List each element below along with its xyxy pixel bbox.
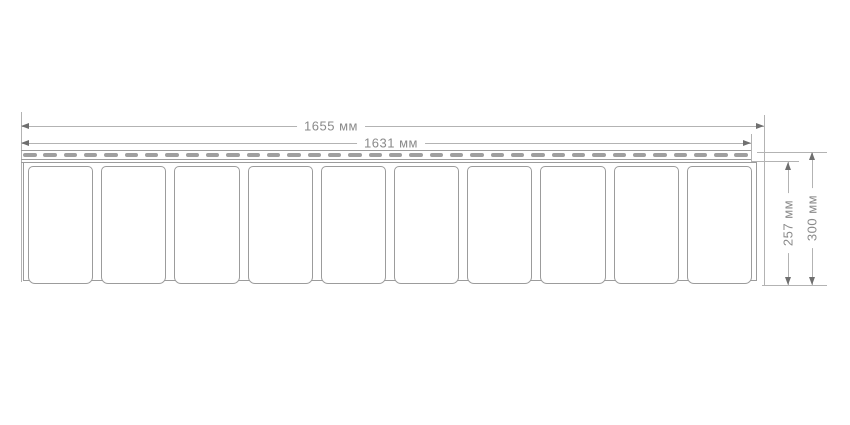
shake-tile (540, 166, 605, 284)
nail-slot (267, 153, 281, 157)
dimension-height-outer-label: 300 мм (805, 188, 820, 248)
nail-slot (714, 153, 728, 157)
dimension-width-inner: 1631 мм (21, 143, 751, 144)
extension-line-left (21, 112, 22, 282)
shake-tile (28, 166, 93, 284)
nail-slot (287, 153, 301, 157)
extension-line-right-inner (751, 134, 752, 163)
nail-slot (165, 153, 179, 157)
nail-slot (23, 153, 37, 157)
nail-slot (389, 153, 403, 157)
extension-line-top-outer (757, 152, 827, 153)
nail-slot (43, 153, 57, 157)
nail-slot (430, 153, 444, 157)
dimension-width-inner-label: 1631 мм (357, 136, 425, 151)
nail-slot (328, 153, 342, 157)
nail-slot (409, 153, 423, 157)
nail-slot (531, 153, 545, 157)
dimension-arrowhead-down-icon (809, 277, 815, 285)
technical-drawing-canvas: 1655 мм 1631 мм 257 мм 300 мм (0, 0, 850, 425)
nail-slot (247, 153, 261, 157)
nail-slot (734, 153, 748, 157)
panel-left-edge (23, 163, 24, 280)
dimension-arrowhead-right-icon (756, 123, 764, 129)
dimension-width-outer: 1655 мм (21, 126, 764, 127)
shake-tile (687, 166, 752, 284)
nail-slot (694, 153, 708, 157)
dimension-arrowhead-up-icon (809, 152, 815, 160)
nail-slot (633, 153, 647, 157)
nail-hem-top-edge (21, 150, 751, 151)
nail-slot (308, 153, 322, 157)
shake-tile (321, 166, 386, 284)
extension-line-right-outer (764, 115, 765, 285)
nail-slot (206, 153, 220, 157)
nail-slot (84, 153, 98, 157)
nail-slot (572, 153, 586, 157)
shake-tile (394, 166, 459, 284)
panel-top-lock-line (21, 162, 757, 163)
nail-slot (511, 153, 525, 157)
nail-slot (369, 153, 383, 157)
nail-slot (186, 153, 200, 157)
nail-slot (552, 153, 566, 157)
nail-slot (125, 153, 139, 157)
nail-slot (653, 153, 667, 157)
extension-line-top-inner (751, 161, 799, 162)
dimension-arrowhead-left-icon (21, 140, 29, 146)
nail-slot (674, 153, 688, 157)
dimension-arrowhead-left-icon (21, 123, 29, 129)
nail-slot (491, 153, 505, 157)
nail-slot (226, 153, 240, 157)
shake-tile (614, 166, 679, 284)
nail-slot (592, 153, 606, 157)
nail-slot (64, 153, 78, 157)
dimension-height-inner: 257 мм (788, 162, 789, 285)
dimension-arrowhead-right-icon (743, 140, 751, 146)
shake-tile (467, 166, 532, 284)
extension-line-bottom (762, 285, 827, 286)
nail-slot (613, 153, 627, 157)
nail-slot (104, 153, 118, 157)
shake-tile (101, 166, 166, 284)
dimension-height-outer: 300 мм (812, 152, 813, 285)
shake-row (28, 166, 752, 284)
dimension-arrowhead-up-icon (785, 162, 791, 170)
nail-hem-perforation-row (23, 153, 748, 157)
panel-right-edge (756, 163, 757, 281)
nail-hem-lower-line (21, 159, 751, 160)
nail-slot (145, 153, 159, 157)
dimension-arrowhead-down-icon (785, 277, 791, 285)
shake-tile (248, 166, 313, 284)
nail-slot (348, 153, 362, 157)
nail-slot (470, 153, 484, 157)
dimension-height-inner-label: 257 мм (781, 193, 796, 253)
nail-slot (450, 153, 464, 157)
shake-tile (174, 166, 239, 284)
dimension-width-outer-label: 1655 мм (297, 119, 365, 134)
